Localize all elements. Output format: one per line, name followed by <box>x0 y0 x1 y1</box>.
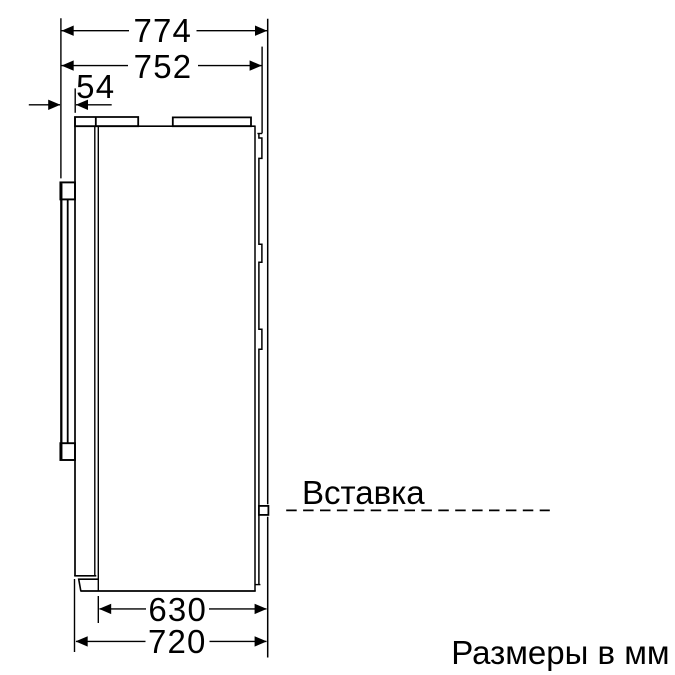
svg-text:752: 752 <box>134 48 193 85</box>
svg-text:Размеры в мм: Размеры в мм <box>451 634 669 671</box>
svg-text:720: 720 <box>148 623 207 660</box>
svg-text:54: 54 <box>76 68 115 105</box>
svg-text:Вставка: Вставка <box>302 474 425 511</box>
svg-text:774: 774 <box>133 12 192 49</box>
